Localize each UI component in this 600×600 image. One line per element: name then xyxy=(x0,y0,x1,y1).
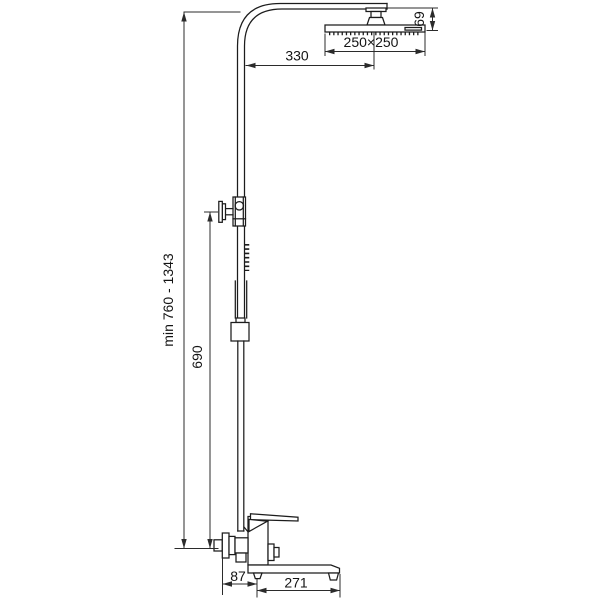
spout-foot-left xyxy=(254,573,263,579)
dim-label-spout-length: 271 xyxy=(284,575,308,591)
head-connector-stem xyxy=(371,12,381,18)
technical-drawing-page: min 760 - 1343 690 330 250×250 xyxy=(0,0,600,600)
pipe-inner-line xyxy=(245,9,388,318)
arrow-up xyxy=(430,8,435,18)
rain-shower-head xyxy=(325,8,425,34)
arrow-down xyxy=(207,539,212,549)
tub-spout xyxy=(248,565,340,573)
diverter-knob-tip xyxy=(274,548,279,558)
arrow-down xyxy=(430,21,435,31)
dim-label-head-size: 250×250 xyxy=(344,34,399,50)
dim-head-size: 250×250 xyxy=(325,33,425,56)
wall-flange-plate xyxy=(222,533,229,558)
head-connector-flare xyxy=(367,18,385,26)
head-plate-clip-detail xyxy=(405,28,422,31)
dim-total-height: min 760 - 1343 xyxy=(160,12,240,549)
telescopic-lock-block xyxy=(231,323,249,342)
hand-shower-holder-bracket xyxy=(219,197,246,226)
shower-column-drawing: min 760 - 1343 690 330 250×250 xyxy=(0,0,600,600)
wall-flange-inner-plate xyxy=(229,536,235,554)
dim-label-spout-offset: 87 xyxy=(230,568,246,584)
union-nut xyxy=(235,538,248,553)
hose-connection-block xyxy=(236,553,246,562)
dim-label-rail-height: 690 xyxy=(189,345,205,369)
dimension-annotations: min 760 - 1343 690 330 250×250 xyxy=(160,8,437,597)
arrow-left xyxy=(257,588,267,593)
dim-label-head-height: 69 xyxy=(411,11,427,27)
wall-pipe-stub xyxy=(214,540,222,551)
arrow-down xyxy=(181,539,186,549)
shower-column-product xyxy=(214,4,425,581)
arrow-left xyxy=(325,49,335,54)
arrow-left xyxy=(246,63,256,68)
riser-pipe-and-shower-arm xyxy=(231,4,387,534)
arrow-right xyxy=(248,581,258,586)
arrow-right xyxy=(365,63,375,68)
dim-label-arm-length: 330 xyxy=(285,48,309,64)
arrow-up xyxy=(207,212,212,222)
arrow-up xyxy=(181,12,186,22)
pipe-outer-line xyxy=(238,4,388,319)
diverter-knob-base xyxy=(268,544,274,561)
arrow-right xyxy=(416,49,426,54)
spout-foot-right xyxy=(329,573,339,580)
arrow-right xyxy=(331,588,341,593)
lock-collar-cap xyxy=(236,318,245,323)
dim-rail-height: 690 xyxy=(189,212,217,549)
holder-flange-outer xyxy=(219,201,223,222)
dim-spout-length: 271 xyxy=(257,575,340,598)
dim-label-total-height: min 760 - 1343 xyxy=(160,253,176,347)
